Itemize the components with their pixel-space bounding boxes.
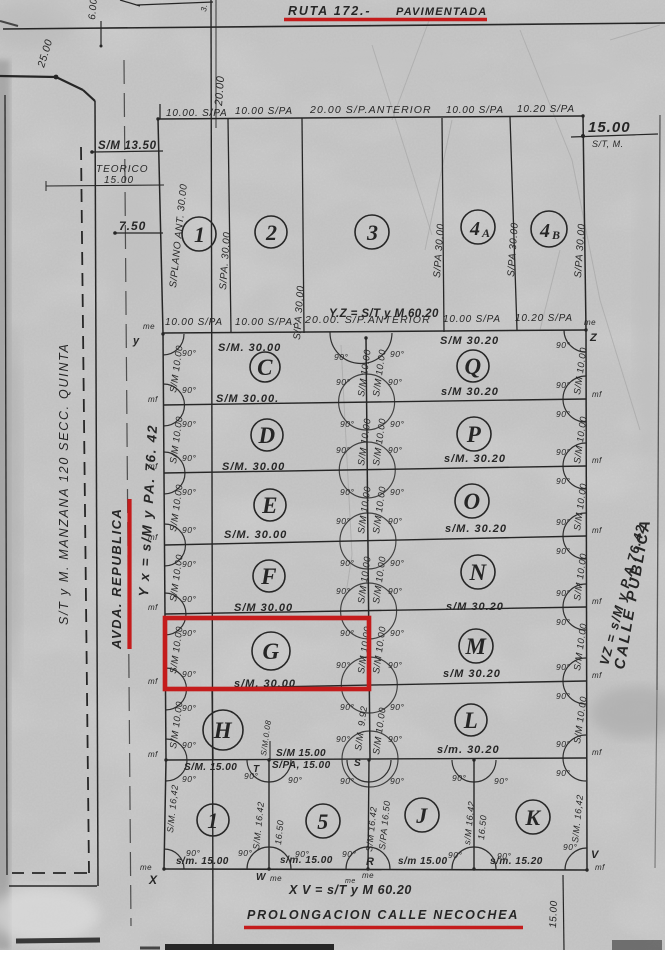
svg-text:S/M 13.50: S/M 13.50 [98, 140, 157, 152]
svg-text:s/M 30.20: s/M 30.20 [446, 601, 504, 613]
svg-text:O: O [463, 489, 480, 514]
svg-text:AVDA. REPUBLICA: AVDA. REPUBLICA [109, 508, 124, 650]
svg-text:90°: 90° [340, 487, 354, 497]
svg-text:J: J [415, 803, 428, 828]
svg-text:90°: 90° [340, 558, 354, 568]
svg-text:L: L [463, 708, 479, 733]
svg-text:S/M 30.20: S/M 30.20 [440, 335, 499, 347]
svg-text:s/M 30.20: s/M 30.20 [441, 386, 499, 398]
svg-text:90°: 90° [336, 586, 350, 596]
svg-text:me: me [345, 878, 356, 885]
svg-text:mf: mf [592, 597, 602, 606]
svg-text:20.00 S/P.ANTERIOR: 20.00 S/P.ANTERIOR [309, 104, 432, 116]
svg-text:90°: 90° [182, 419, 196, 429]
svg-text:10.00 S/PA: 10.00 S/PA [443, 314, 501, 325]
svg-text:mf: mf [148, 395, 158, 404]
svg-text:90°: 90° [388, 516, 402, 526]
svg-text:90°: 90° [390, 702, 404, 712]
svg-text:90°: 90° [390, 349, 404, 359]
svg-text:90°: 90° [182, 385, 196, 395]
svg-text:10.00 S/PA: 10.00 S/PA [165, 317, 223, 328]
svg-text:90°: 90° [556, 476, 570, 486]
svg-text:E: E [261, 493, 278, 518]
svg-text:S/M. 30.00: S/M. 30.00 [224, 529, 287, 541]
svg-text:90°: 90° [390, 628, 404, 638]
svg-text:P: P [466, 422, 482, 447]
svg-text:S/T y M. MANZANA 120 SECC.: S/T y M. MANZANA 120 SECC. QUINTA [57, 342, 71, 625]
svg-text:mf: mf [592, 526, 602, 535]
svg-text:90°: 90° [556, 517, 570, 527]
svg-text:15.00: 15.00 [104, 175, 134, 186]
svg-text:5: 5 [317, 809, 329, 834]
svg-text:S/M. 30.00: S/M. 30.00 [218, 342, 281, 354]
svg-text:10.20 S/PA: 10.20 S/PA [517, 104, 575, 115]
svg-text:me: me [143, 322, 155, 331]
svg-text:F: F [260, 564, 277, 589]
svg-text:90°: 90° [340, 628, 354, 638]
svg-text:90°: 90° [556, 409, 570, 419]
svg-text:Y.Z = S/T y M.60.20: Y.Z = S/T y M.60.20 [329, 308, 439, 320]
svg-text:s/M 30.20: s/M 30.20 [443, 668, 501, 680]
svg-text:4: 4 [469, 218, 481, 240]
svg-text:Q: Q [464, 354, 481, 379]
svg-text:90°: 90° [340, 776, 354, 786]
svg-text:1: 1 [207, 808, 219, 833]
svg-text:me: me [584, 318, 596, 327]
svg-text:15.00: 15.00 [588, 119, 631, 136]
svg-text:90°: 90° [556, 380, 570, 390]
svg-text:90°: 90° [182, 628, 196, 638]
svg-text:90°: 90° [288, 775, 302, 785]
svg-text:90°: 90° [244, 771, 258, 781]
svg-text:s/m. 15.20: s/m. 15.20 [490, 856, 543, 867]
svg-text:90°: 90° [388, 660, 402, 670]
svg-text:mf: mf [148, 603, 158, 612]
svg-text:s/m. 15.00: s/m. 15.00 [280, 855, 333, 866]
svg-text:20.00: 20.00 [213, 75, 227, 107]
svg-text:B: B [551, 228, 561, 242]
svg-text:90°: 90° [182, 559, 196, 569]
svg-text:90°: 90° [556, 768, 570, 778]
svg-text:RUTA 172.-: RUTA 172.- [288, 4, 371, 18]
svg-text:2: 2 [265, 220, 278, 245]
svg-text:90°: 90° [336, 445, 350, 455]
svg-text:4: 4 [539, 220, 551, 242]
svg-text:H: H [213, 718, 233, 743]
svg-text:1: 1 [194, 222, 206, 247]
svg-text:90°: 90° [390, 419, 404, 429]
svg-text:G: G [262, 639, 279, 664]
svg-text:S/M. 15.00: S/M. 15.00 [184, 762, 237, 773]
svg-text:V: V [591, 849, 600, 861]
svg-text:s/m. 30.20: s/m. 30.20 [437, 744, 500, 756]
svg-text:90°: 90° [556, 691, 570, 701]
svg-text:mf: mf [148, 750, 158, 759]
svg-text:90°: 90° [388, 445, 402, 455]
svg-text:R: R [366, 856, 374, 868]
svg-text:90°: 90° [388, 734, 402, 744]
svg-text:90°: 90° [556, 739, 570, 749]
svg-text:Z: Z [589, 332, 598, 344]
svg-text:10.00 S/PA: 10.00 S/PA [446, 105, 504, 116]
svg-text:90°: 90° [563, 842, 577, 852]
svg-text:90°: 90° [182, 487, 196, 497]
svg-text:S/M 30.00: S/M 30.00 [234, 602, 293, 614]
svg-text:mf: mf [592, 390, 602, 399]
svg-text:90°: 90° [556, 662, 570, 672]
svg-text:90°: 90° [182, 740, 196, 750]
svg-text:X V = s/T y M 60.20: X V = s/T y M 60.20 [288, 883, 412, 897]
svg-text:90°: 90° [182, 348, 196, 358]
svg-text:y: y [132, 335, 140, 347]
svg-text:90°: 90° [388, 377, 402, 387]
svg-text:me: me [362, 871, 374, 880]
svg-text:90°: 90° [340, 419, 354, 429]
svg-text:90°: 90° [556, 340, 570, 350]
svg-text:me: me [140, 863, 152, 872]
svg-text:10.20 S/PA: 10.20 S/PA [515, 313, 573, 324]
svg-text:90°: 90° [334, 352, 348, 362]
svg-text:S/T, M.: S/T, M. [592, 139, 624, 149]
svg-text:S/M 15.00: S/M 15.00 [276, 748, 326, 759]
svg-text:90°: 90° [390, 487, 404, 497]
svg-text:M: M [465, 634, 488, 659]
svg-text:TEORICO: TEORICO [96, 164, 149, 175]
svg-text:s/M. 30.20: s/M. 30.20 [444, 453, 506, 465]
svg-text:90°: 90° [336, 734, 350, 744]
svg-text:s/m 15.00: s/m 15.00 [398, 856, 448, 867]
svg-text:mf: mf [592, 671, 602, 680]
svg-text:PAVIMENTADA: PAVIMENTADA [396, 6, 487, 18]
svg-text:S/M. 30.00: S/M. 30.00 [222, 461, 285, 473]
svg-text:3.: 3. [199, 3, 209, 12]
svg-text:7.50: 7.50 [119, 219, 146, 233]
svg-text:15.00: 15.00 [548, 900, 560, 928]
svg-text:90°: 90° [388, 586, 402, 596]
svg-text:me: me [270, 874, 282, 883]
svg-text:s/M. 30.20: s/M. 30.20 [445, 523, 507, 535]
svg-text:90°: 90° [556, 447, 570, 457]
svg-text:90°: 90° [390, 776, 404, 786]
svg-text:90°: 90° [182, 669, 196, 679]
svg-text:90°: 90° [452, 773, 466, 783]
svg-text:X: X [148, 873, 158, 887]
svg-text:K: K [524, 805, 541, 830]
svg-text:90°: 90° [342, 849, 356, 859]
svg-text:90°: 90° [238, 848, 252, 858]
svg-text:10.00 S/PA: 10.00 S/PA [235, 106, 293, 117]
svg-text:90°: 90° [182, 774, 196, 784]
svg-text:PROLONGACION CALLE NECOCHEA: PROLONGACION CALLE NECOCHEA [247, 908, 519, 922]
svg-text:mf: mf [148, 677, 158, 686]
svg-text:90°: 90° [340, 702, 354, 712]
svg-text:90°: 90° [182, 594, 196, 604]
svg-text:s/m. 15.00: s/m. 15.00 [176, 856, 229, 867]
svg-text:S: S [354, 758, 361, 769]
svg-text:90°: 90° [182, 453, 196, 463]
svg-text:90°: 90° [494, 776, 508, 786]
svg-text:90°: 90° [336, 660, 350, 670]
svg-text:6.00: 6.00 [87, 0, 100, 20]
svg-text:90°: 90° [336, 516, 350, 526]
svg-text:S/M 30.00.: S/M 30.00. [216, 393, 279, 405]
svg-text:90°: 90° [556, 617, 570, 627]
svg-text:3: 3 [366, 220, 379, 245]
svg-text:A: A [481, 226, 491, 240]
svg-text:90°: 90° [336, 377, 350, 387]
svg-text:90°: 90° [182, 525, 196, 535]
svg-text:mf: mf [595, 863, 605, 872]
svg-text:90°: 90° [182, 703, 196, 713]
svg-text:C: C [257, 355, 273, 380]
svg-text:90°: 90° [448, 850, 462, 860]
svg-text:10.00. S/PA: 10.00. S/PA [166, 108, 227, 119]
svg-text:90°: 90° [556, 546, 570, 556]
svg-text:90°: 90° [390, 558, 404, 568]
svg-text:90°: 90° [556, 588, 570, 598]
svg-text:W: W [256, 872, 267, 883]
svg-text:mf: mf [592, 456, 602, 465]
svg-text:10.00 S/PA.: 10.00 S/PA. [235, 317, 296, 328]
svg-text:S/PA, 15.00: S/PA, 15.00 [272, 760, 331, 771]
svg-text:mf: mf [592, 748, 602, 757]
svg-text:D: D [257, 423, 275, 448]
svg-text:N: N [468, 560, 487, 585]
